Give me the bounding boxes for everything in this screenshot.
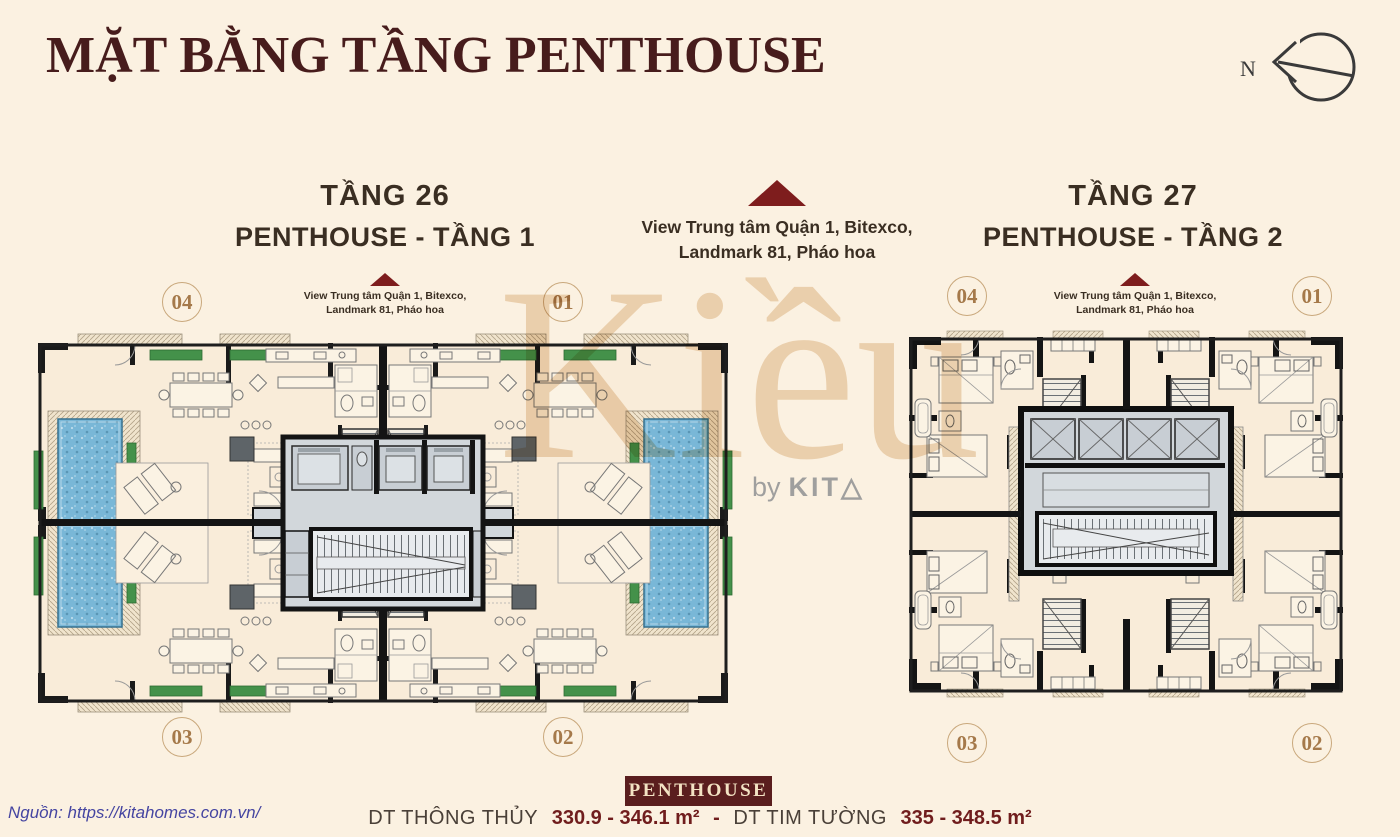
unit-badge-27-03: 03 xyxy=(947,723,987,763)
floor-sublabel: PENTHOUSE - TẦNG 2 xyxy=(883,222,1383,253)
area-separator: - xyxy=(713,807,720,829)
floor-plan-tang-27 xyxy=(903,323,1349,705)
unit-badge-26-01: 01 xyxy=(543,282,583,322)
view-note-line2: Landmark 81, Pháo hoa xyxy=(622,240,932,265)
unit-badge-26-03: 03 xyxy=(162,717,202,757)
floor-label: TẦNG 26 xyxy=(135,180,635,213)
area1-value: 330.9 - 346.1 m² xyxy=(552,807,700,829)
view-direction-triangle-icon xyxy=(1120,273,1150,286)
view-direction-triangle-icon xyxy=(370,273,400,286)
view-note-line2: Landmark 81, Pháo hoa xyxy=(235,303,535,317)
watermark-brand: KIT xyxy=(789,472,842,502)
compass: N xyxy=(1232,24,1372,120)
floor-sublabel: PENTHOUSE - TẦNG 1 xyxy=(135,222,635,253)
area2-label: DT TIM TƯỜNG xyxy=(733,807,887,829)
unit-badge-27-01: 01 xyxy=(1292,276,1332,316)
area2-value: 335 - 348.5 m² xyxy=(901,807,1032,829)
core-stairs xyxy=(311,529,471,599)
floor-label: TẦNG 27 xyxy=(883,180,1383,213)
watermark-byline: byKIT△ xyxy=(752,472,862,503)
page: { "page": { "title": "MẶT BẰNG TẦNG PENT… xyxy=(0,0,1400,837)
penthouse-badge: PENTHOUSE xyxy=(625,776,772,806)
unit-badge-27-04: 04 xyxy=(947,276,987,316)
kita-triangle-icon: △ xyxy=(841,472,862,502)
view-note-tang-26: View Trung tâm Quận 1, Bitexco, Landmark… xyxy=(235,273,535,317)
source-credit: Nguồn: https://kitahomes.com.vn/ xyxy=(8,803,260,823)
view-note-line1: View Trung tâm Quận 1, Bitexco, xyxy=(622,215,932,240)
plan-header-tang-26: TẦNG 26 PENTHOUSE - TẦNG 1 xyxy=(135,180,635,253)
page-title: MẶT BẰNG TẦNG PENTHOUSE xyxy=(46,26,826,85)
unit-badge-26-04: 04 xyxy=(162,282,202,322)
floor-plan-tang-26-drawing xyxy=(30,325,736,721)
view-direction-triangle-icon xyxy=(748,180,806,206)
watermark-by-word: by xyxy=(752,472,781,502)
area1-label: DT THÔNG THỦY xyxy=(368,807,538,829)
unit-badge-27-02: 02 xyxy=(1292,723,1332,763)
plan-header-tang-27: TẦNG 27 PENTHOUSE - TẦNG 2 xyxy=(883,180,1383,253)
unit-badge-26-02: 02 xyxy=(543,717,583,757)
compass-north-label: N xyxy=(1240,56,1256,81)
compass-icon: N xyxy=(1232,24,1372,120)
floor-plan-tang-27-drawing xyxy=(903,323,1349,705)
view-note-line1: View Trung tâm Quận 1, Bitexco, xyxy=(985,289,1285,303)
view-note-line1: View Trung tâm Quận 1, Bitexco, xyxy=(235,289,535,303)
view-note-line2: Landmark 81, Pháo hoa xyxy=(985,303,1285,317)
core xyxy=(253,437,513,609)
center-view-note: View Trung tâm Quận 1, Bitexco, Landmark… xyxy=(622,180,932,266)
core-stairs xyxy=(1037,513,1215,565)
core xyxy=(1021,409,1231,573)
floor-plan-tang-26 xyxy=(30,325,736,721)
view-note-tang-27: View Trung tâm Quận 1, Bitexco, Landmark… xyxy=(985,273,1285,317)
